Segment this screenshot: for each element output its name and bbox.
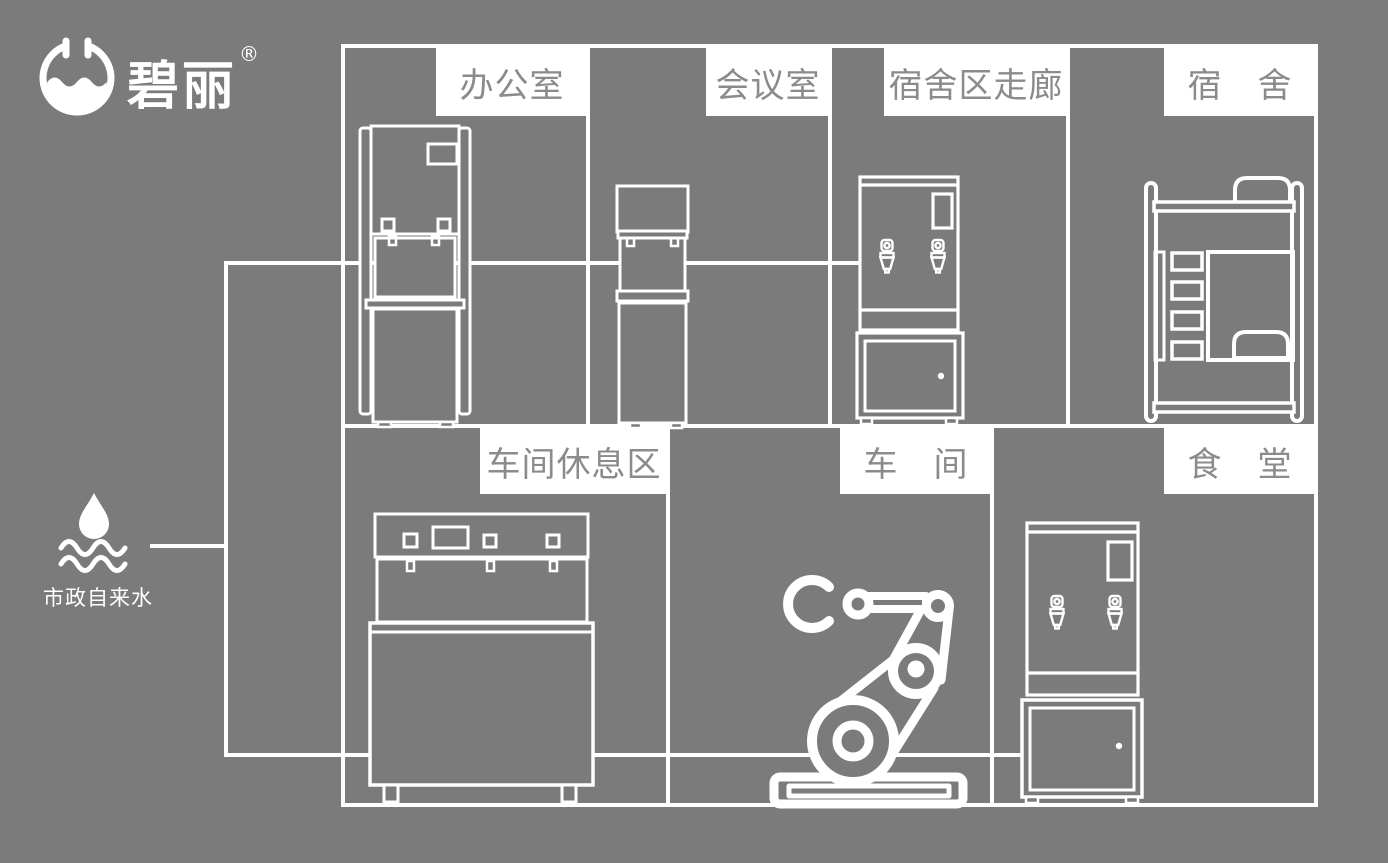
room-label-workshop-rest-area: 车间休息区	[480, 428, 668, 494]
water-source-icon	[61, 493, 125, 571]
brand-name: 碧丽	[127, 44, 237, 119]
room-label-dorm: 宿 舍	[1164, 48, 1316, 116]
office-water-dispenser	[360, 126, 470, 427]
canteen-water-boiler	[1022, 523, 1142, 803]
meeting-room-water-dispenser	[617, 186, 688, 428]
diagram-stage: 碧丽 ® 办公室 会议室 宿舍区走廊 宿 舍 车间休息区 车 间 食 堂 市政自…	[0, 0, 1388, 863]
registered-trademark: ®	[239, 42, 259, 66]
room-label-workshop: 车 间	[840, 428, 992, 494]
water-drop-icon	[79, 493, 109, 539]
rest-area-water-dispenser	[370, 514, 593, 802]
room-label-office: 办公室	[436, 48, 588, 116]
brand-wordmark: 碧丽 ®	[127, 44, 259, 119]
room-label-meeting-room: 会议室	[706, 48, 830, 116]
robot-arm-icon	[774, 580, 963, 804]
water-source-label: 市政自来水	[40, 582, 156, 612]
pillow-icon	[1235, 178, 1290, 204]
brand-logo-icon	[43, 41, 111, 115]
bunk-bed	[1146, 178, 1302, 421]
pillow-icon	[1234, 332, 1288, 358]
room-label-canteen: 食 堂	[1164, 428, 1316, 494]
waves-icon	[61, 542, 125, 571]
room-label-dorm-corridor: 宿舍区走廊	[884, 48, 1068, 116]
gripper-icon	[788, 580, 829, 628]
corridor-water-boiler	[857, 177, 963, 424]
